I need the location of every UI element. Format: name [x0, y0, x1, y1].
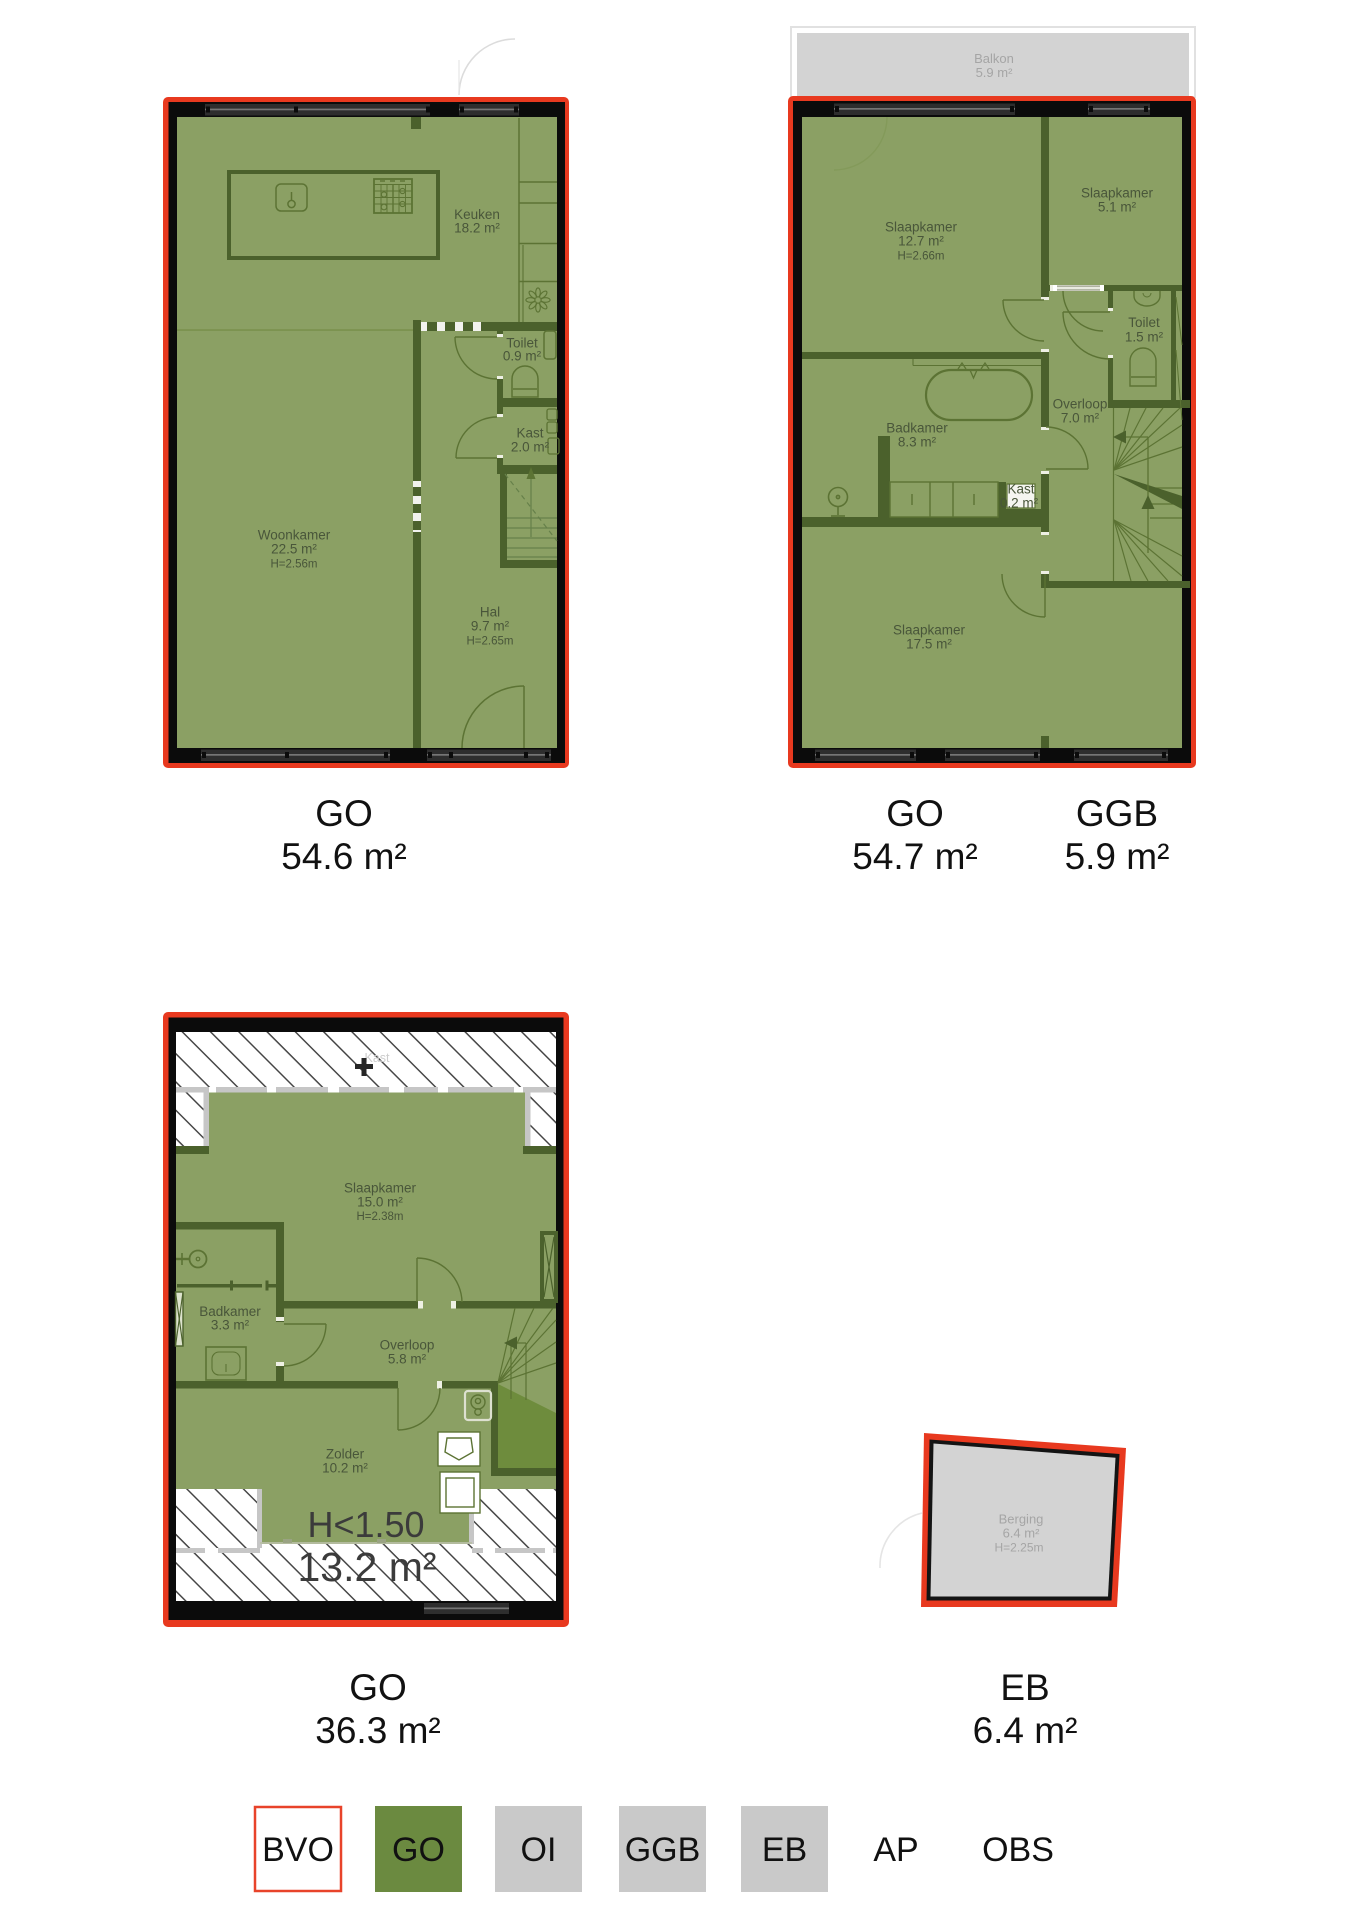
- svg-text:9.7 m²: 9.7 m²: [471, 619, 510, 634]
- svg-text:5.9 m²: 5.9 m²: [1065, 836, 1170, 877]
- svg-text:GO: GO: [392, 1831, 445, 1869]
- svg-text:6.4 m²: 6.4 m²: [973, 1710, 1078, 1751]
- svg-text:Slaapkamer: Slaapkamer: [344, 1181, 417, 1196]
- svg-text:5.8 m²: 5.8 m²: [388, 1352, 427, 1367]
- svg-text:GGB: GGB: [1076, 793, 1158, 834]
- svg-text:8.3 m²: 8.3 m²: [898, 435, 937, 450]
- svg-text:6.4 m²: 6.4 m²: [1003, 1526, 1041, 1541]
- svg-text:10.2 m²: 10.2 m²: [322, 1461, 368, 1476]
- svg-text:H=2.66m: H=2.66m: [898, 251, 945, 263]
- svg-text:36.3 m²: 36.3 m²: [315, 1710, 440, 1751]
- svg-text:Hal: Hal: [480, 605, 500, 620]
- svg-text:17.5 m²: 17.5 m²: [906, 637, 952, 652]
- svg-text:Badkamer: Badkamer: [886, 421, 948, 436]
- svg-text:54.6 m²: 54.6 m²: [281, 836, 406, 877]
- svg-text:7.0 m²: 7.0 m²: [1061, 411, 1100, 426]
- svg-text:12.7 m²: 12.7 m²: [898, 234, 944, 249]
- svg-text:GO: GO: [349, 1667, 407, 1708]
- svg-text:OI: OI: [521, 1831, 557, 1869]
- svg-text:EB: EB: [762, 1831, 807, 1869]
- svg-text:AP: AP: [873, 1831, 918, 1869]
- svg-text:Kast: Kast: [1007, 482, 1034, 497]
- svg-text:3.3 m²: 3.3 m²: [211, 1318, 250, 1333]
- svg-text:EB: EB: [1000, 1667, 1049, 1708]
- svg-text:Woonkamer: Woonkamer: [258, 528, 331, 543]
- svg-text:Zolder: Zolder: [326, 1447, 365, 1462]
- svg-text:18.2 m²: 18.2 m²: [454, 221, 500, 236]
- svg-text:Berging: Berging: [999, 1512, 1044, 1527]
- svg-text:0.9 m²: 0.9 m²: [503, 349, 542, 364]
- svg-text:22.5 m²: 22.5 m²: [271, 542, 317, 557]
- svg-text:Overloop: Overloop: [380, 1338, 435, 1353]
- svg-text:Kast: Kast: [516, 426, 543, 441]
- svg-text:Overloop: Overloop: [1053, 397, 1108, 412]
- svg-text:GO: GO: [886, 793, 944, 834]
- svg-text:Slaapkamer: Slaapkamer: [1081, 186, 1154, 201]
- svg-text:0.2 m²: 0.2 m²: [1000, 496, 1039, 511]
- svg-text:H=2.25m: H=2.25m: [994, 1541, 1043, 1555]
- svg-text:H=2.38m: H=2.38m: [357, 1211, 404, 1223]
- svg-text:Kast: Kast: [364, 1051, 390, 1065]
- svg-text:H=2.65m: H=2.65m: [467, 636, 514, 648]
- svg-text:BVO: BVO: [262, 1831, 334, 1869]
- svg-text:5.9 m²: 5.9 m²: [976, 65, 1014, 80]
- svg-text:Toilet: Toilet: [1128, 315, 1160, 330]
- svg-text:2.0 m²: 2.0 m²: [511, 440, 550, 455]
- svg-text:1.5 m²: 1.5 m²: [1125, 330, 1164, 345]
- svg-text:13.2 m²: 13.2 m²: [298, 1544, 437, 1590]
- svg-text:54.7 m²: 54.7 m²: [852, 836, 977, 877]
- svg-text:OBS: OBS: [982, 1831, 1054, 1869]
- svg-text:H=2.56m: H=2.56m: [271, 559, 318, 571]
- svg-text:Balkon: Balkon: [974, 51, 1014, 66]
- svg-text:Slaapkamer: Slaapkamer: [893, 623, 966, 638]
- svg-text:Slaapkamer: Slaapkamer: [885, 220, 958, 235]
- svg-text:H<1.50: H<1.50: [307, 1504, 424, 1545]
- svg-text:GO: GO: [315, 793, 373, 834]
- svg-text:GGB: GGB: [625, 1831, 701, 1869]
- svg-text:5.1 m²: 5.1 m²: [1098, 200, 1137, 215]
- svg-text:15.0 m²: 15.0 m²: [357, 1195, 403, 1210]
